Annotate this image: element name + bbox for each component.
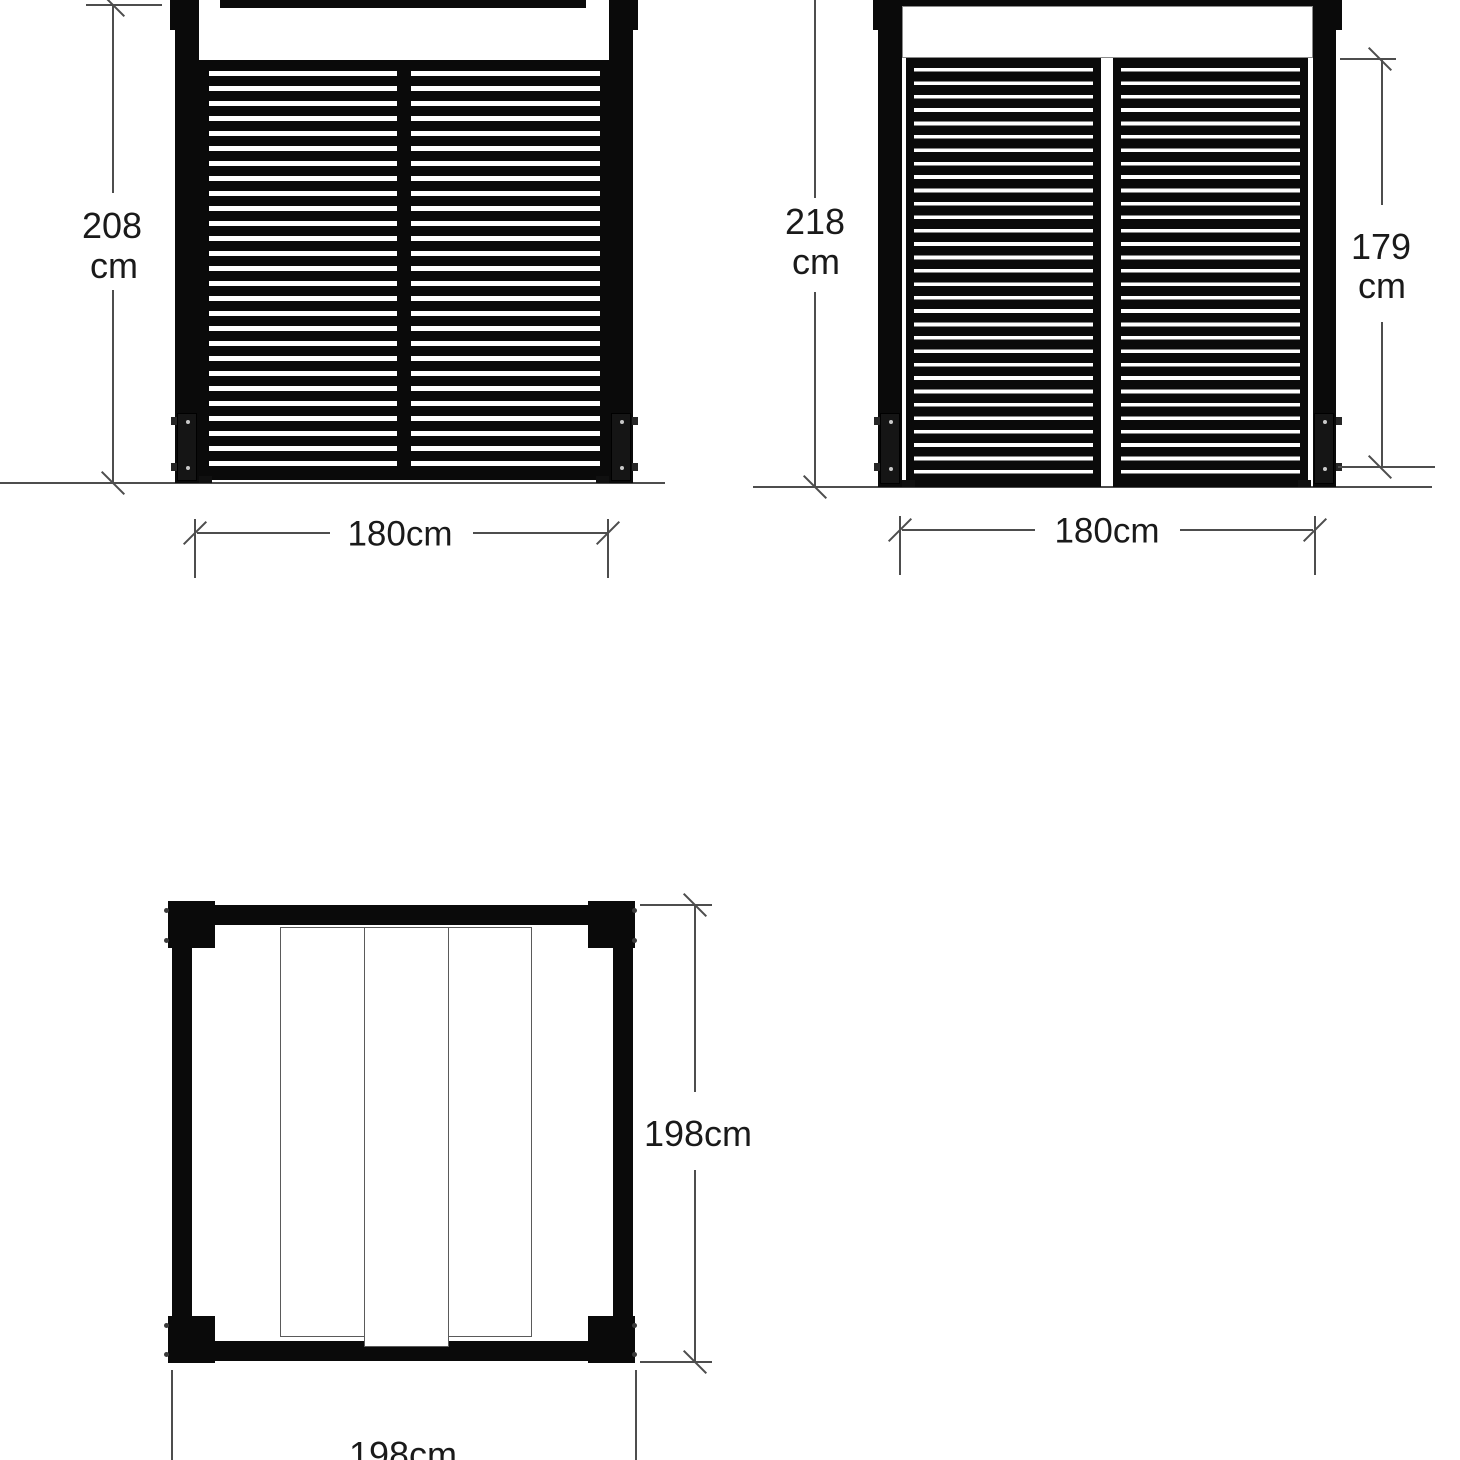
dimension-label-width: 180cm	[347, 517, 452, 552]
top-beam	[220, 0, 586, 8]
dimension-label-width: 180cm	[1054, 514, 1159, 549]
screw-dot	[889, 467, 893, 471]
screw-dot	[632, 938, 637, 943]
bolt-nub	[874, 417, 880, 425]
screw-dot	[186, 466, 190, 470]
bolt-nub	[1336, 417, 1342, 425]
screw-dot	[620, 420, 624, 424]
slat-stripes	[914, 68, 1093, 478]
screw-dot	[1323, 420, 1327, 424]
slat-stripes-left	[209, 71, 397, 476]
post-right	[609, 0, 633, 483]
dimension-line	[1381, 322, 1383, 467]
bolt-nub	[632, 463, 638, 471]
screw-dot	[620, 466, 624, 470]
technical-drawing-sheet: 208 cm 180cm	[0, 0, 1460, 1460]
slat-panel	[199, 60, 609, 480]
dimension-label-height-value: 218	[785, 204, 845, 240]
post-anchor-bracket-left	[880, 413, 900, 484]
post-foot	[1298, 480, 1311, 487]
post-foot	[902, 480, 915, 487]
dimension-label-width: 198cm	[349, 1437, 457, 1460]
dimension-ref-line	[86, 4, 162, 6]
post-foot	[596, 476, 609, 483]
screw-dot	[186, 420, 190, 424]
post-anchor-bracket-left	[177, 413, 197, 481]
dimension-ext-line	[171, 1370, 173, 1460]
screw-dot	[632, 908, 637, 913]
dimension-ext-line	[635, 1370, 637, 1460]
post-anchor-bracket-right	[1314, 413, 1334, 484]
dimension-line	[473, 532, 607, 534]
screw-dot	[632, 1352, 637, 1357]
dimension-line	[694, 905, 696, 1092]
dimension-line	[814, 0, 816, 198]
deck-board	[448, 927, 532, 1337]
dimension-ext-line	[899, 516, 901, 575]
bolt-nub	[171, 463, 177, 471]
dimension-line	[112, 5, 114, 193]
dimension-label-height-unit: cm	[90, 248, 138, 284]
post-anchor-bracket-right	[611, 413, 631, 481]
slat-stripes-right	[411, 71, 600, 476]
corner-post-bottom-left	[168, 1316, 215, 1363]
frame-rail-left	[172, 925, 192, 1341]
corner-post-top-right	[588, 901, 635, 948]
deck-board-center	[364, 927, 449, 1347]
dimension-line	[694, 1170, 696, 1362]
dimension-ext-line	[607, 519, 609, 578]
post-foot	[199, 476, 212, 483]
slat-panel-right-half	[1113, 58, 1308, 487]
top-rail-band	[902, 6, 1313, 58]
dimension-line	[112, 290, 114, 483]
screw-dot	[1323, 467, 1327, 471]
dimension-ref-line	[640, 904, 712, 906]
bolt-nub	[632, 417, 638, 425]
frame-rail-top	[190, 905, 615, 925]
screw-dot	[889, 420, 893, 424]
corner-post-bottom-right	[588, 1316, 635, 1363]
dimension-ref-line	[640, 1361, 712, 1363]
dimension-label-panel-height-value: 179	[1351, 229, 1411, 265]
screw-dot	[164, 938, 169, 943]
dimension-line	[1180, 529, 1313, 531]
screw-dot	[164, 908, 169, 913]
dimension-ref-line	[1338, 466, 1435, 468]
dimension-label-depth: 198cm	[644, 1116, 752, 1152]
ground-line	[0, 482, 665, 484]
bolt-nub	[171, 417, 177, 425]
screw-dot	[164, 1323, 169, 1328]
bolt-nub	[874, 463, 880, 471]
dimension-label-height-unit: cm	[792, 244, 840, 280]
slat-stripes	[1121, 68, 1300, 478]
dimension-line	[902, 529, 1035, 531]
dimension-label-height-value: 208	[82, 208, 142, 244]
screw-dot	[164, 1352, 169, 1357]
dimension-line	[197, 532, 330, 534]
dimension-line	[1381, 59, 1383, 205]
dimension-line	[814, 292, 816, 487]
post-left	[175, 0, 199, 483]
slat-panel-left-half	[906, 58, 1101, 487]
frame-rail-right	[613, 925, 633, 1341]
dimension-ext-line	[1314, 516, 1316, 575]
dimension-label-panel-height-unit: cm	[1358, 268, 1406, 304]
screw-dot	[632, 1323, 637, 1328]
dimension-ext-line	[194, 519, 196, 578]
deck-board	[280, 927, 365, 1337]
corner-post-top-left	[168, 901, 215, 948]
dimension-ref-line	[1340, 58, 1396, 60]
